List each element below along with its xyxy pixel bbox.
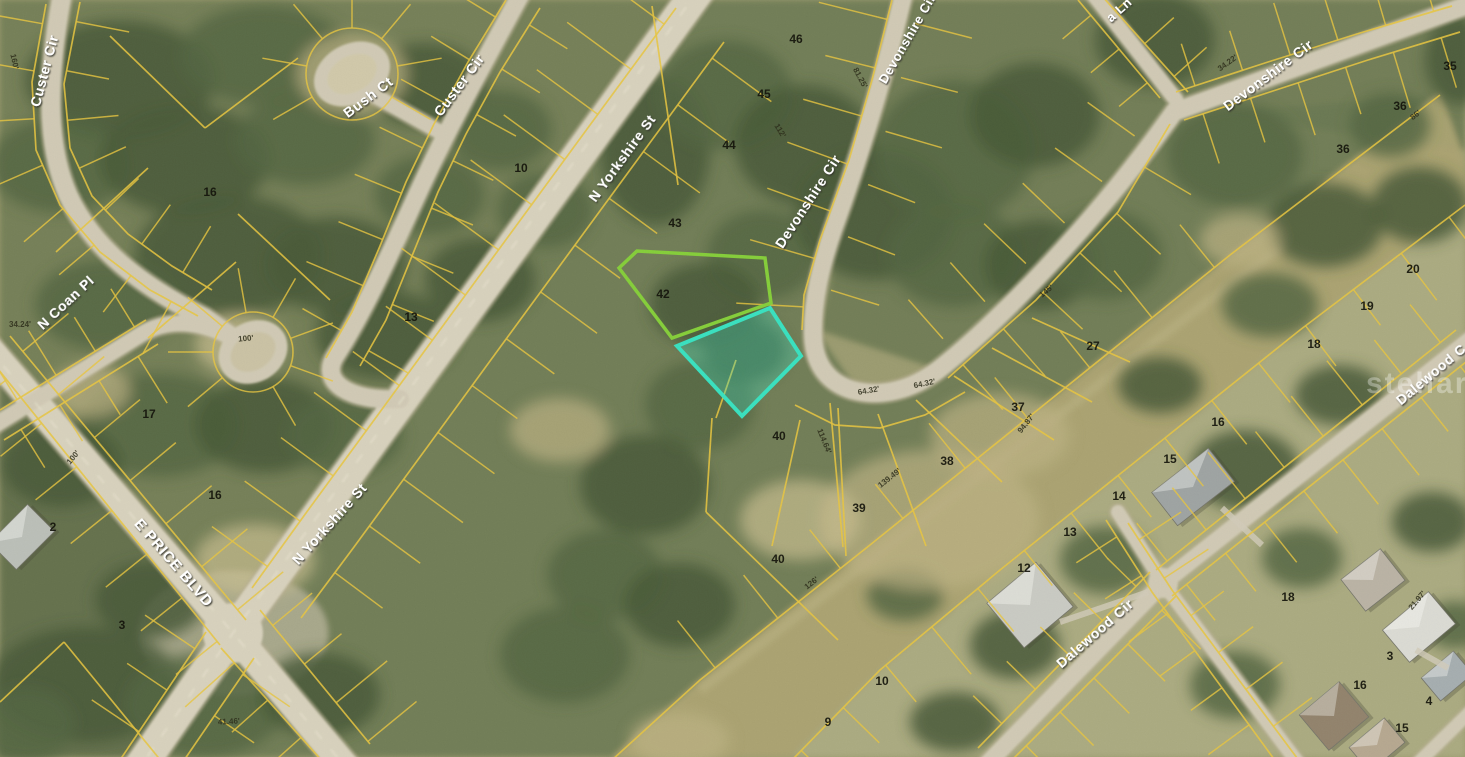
lot-number: 42 — [656, 287, 670, 301]
lot-number: 20 — [1406, 262, 1420, 276]
lot-number: 13 — [404, 310, 418, 324]
lot-number: 44 — [722, 138, 736, 152]
lot-number: 17 — [142, 407, 156, 421]
lot-number: 10 — [875, 674, 889, 688]
lot-number: 18 — [1281, 590, 1295, 604]
lot-number: 16 — [1211, 415, 1225, 429]
dimension-label: 100' — [238, 333, 254, 343]
mls-watermark: stellar MLS — [1366, 367, 1465, 400]
lot-number: 12 — [1017, 561, 1031, 575]
lot-number: 15 — [1395, 721, 1409, 735]
lot-number: 19 — [1360, 299, 1374, 313]
lot-number: 18 — [1307, 337, 1321, 351]
lot-number: 43 — [668, 216, 682, 230]
lot-number: 3 — [1387, 649, 1394, 663]
lot-number: 15 — [1163, 452, 1177, 466]
aerial-map-screenshot: 100' 34.24' 41.46' 64.32' 64.32' 126' 11… — [0, 0, 1465, 757]
lot-number: 13 — [1063, 525, 1077, 539]
aerial-map: 100' 34.24' 41.46' 64.32' 64.32' 126' 11… — [0, 0, 1465, 757]
lot-number: 14 — [1112, 489, 1126, 503]
lot-number: 9 — [825, 715, 832, 729]
lot-number: 40 — [771, 552, 785, 566]
lot-number: 36 — [1393, 99, 1407, 113]
dimension-label: 41.46' — [218, 716, 240, 726]
noise-overlay — [0, 0, 1465, 757]
lot-number: 39 — [852, 501, 866, 515]
lot-number: 10 — [514, 161, 528, 175]
lot-number: 4 — [1426, 694, 1433, 708]
lot-number: 2 — [50, 520, 57, 534]
lot-number: 38 — [940, 454, 954, 468]
lot-number: 27 — [1086, 339, 1100, 353]
lot-number: 45 — [757, 87, 771, 101]
lot-number: 35 — [1443, 59, 1457, 73]
lot-number: 36 — [1336, 142, 1350, 156]
lot-number: 3 — [119, 618, 126, 632]
lot-number: 46 — [789, 32, 803, 46]
dimension-label: 34.24' — [9, 320, 31, 329]
lot-number: 40 — [772, 429, 786, 443]
lot-number: 37 — [1011, 400, 1025, 414]
lot-number: 16 — [203, 185, 217, 199]
lot-number: 16 — [208, 488, 222, 502]
lot-number: 16 — [1353, 678, 1367, 692]
